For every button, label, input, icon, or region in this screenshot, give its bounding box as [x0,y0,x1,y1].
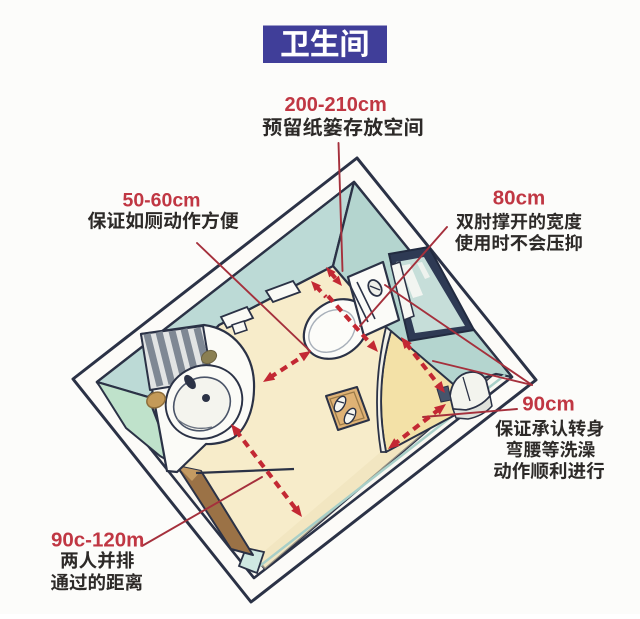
svg-text:50-60cm: 50-60cm [122,190,200,212]
svg-text:90c-120m: 90c-120m [51,529,144,552]
svg-text:80cm: 80cm [493,187,545,210]
svg-text:200-210cm: 200-210cm [285,94,387,116]
svg-text:90cm: 90cm [522,393,574,416]
